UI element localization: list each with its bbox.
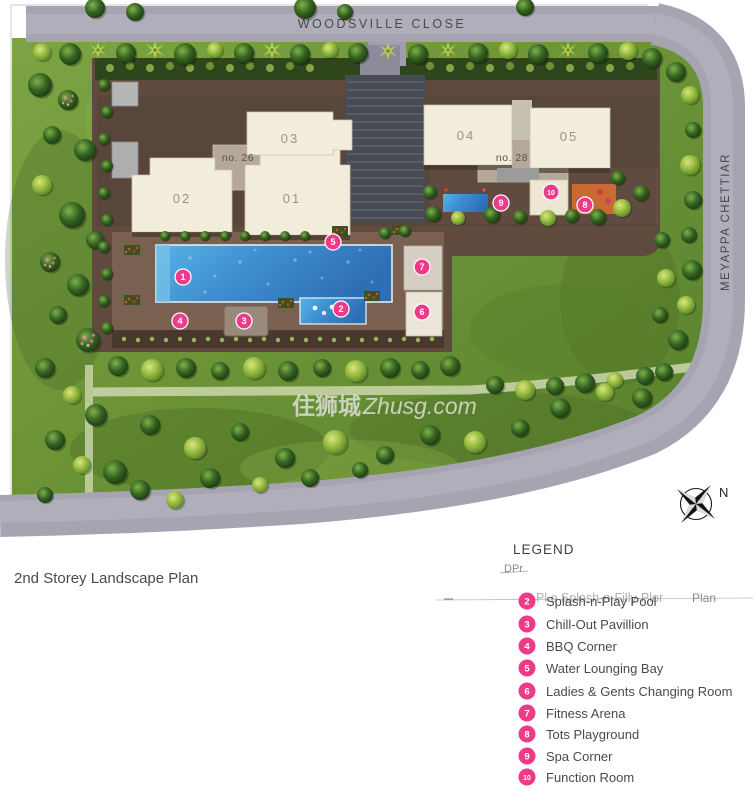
marker-6: 6 <box>414 304 430 320</box>
building-label-05: 05 <box>560 129 578 144</box>
svg-text:2: 2 <box>338 304 343 314</box>
road-label-woodsville-close: WOODSVILLE CLOSE <box>298 17 467 31</box>
legend-heading: LEGEND <box>513 542 575 557</box>
watermark: 住狮城Zhusg.com <box>292 393 477 419</box>
svg-text:7: 7 <box>524 708 529 719</box>
svg-text:Function Room: Function Room <box>546 770 634 785</box>
svg-text:Splash-n-Play Pool: Splash-n-Play Pool <box>546 594 657 609</box>
svg-text:BBQ Corner: BBQ Corner <box>546 639 617 654</box>
svg-text:Chill-Out Pavillion: Chill-Out Pavillion <box>546 617 649 632</box>
building-label-04: 04 <box>457 128 475 143</box>
marker-1: 1 <box>175 269 191 285</box>
lap-pool <box>156 245 392 302</box>
building-label-01: 01 <box>283 191 301 206</box>
building-label-02: 02 <box>173 191 191 206</box>
page-title: 2nd Storey Landscape Plan <box>14 570 198 587</box>
legend-scan-artifact-small: DPr <box>504 563 523 575</box>
svg-text:6: 6 <box>524 686 529 697</box>
svg-text:8: 8 <box>582 200 587 210</box>
svg-text:4: 4 <box>524 641 530 652</box>
marker-7: 7 <box>414 259 430 275</box>
svg-text:5: 5 <box>330 237 335 247</box>
svg-text:Tots Playground: Tots Playground <box>546 727 639 742</box>
svg-text:9: 9 <box>498 198 503 208</box>
site-plan-svg: WOODSVILLE CLOSE MEYAPPA CHETTIAR <box>0 0 753 800</box>
legend-scan-artifact-plan: Plan <box>692 591 716 605</box>
svg-text:6: 6 <box>419 307 424 317</box>
legend-item-changing-room: 6Ladies & Gents Changing Room <box>519 683 733 700</box>
svg-text:2: 2 <box>524 596 529 607</box>
svg-text:8: 8 <box>524 729 529 740</box>
compass-north-label: N <box>719 485 728 500</box>
marker-2: 2 <box>333 301 349 317</box>
marker-8: 8 <box>577 197 593 213</box>
marker-5: 5 <box>325 234 341 250</box>
svg-text:1: 1 <box>180 272 185 282</box>
svg-text:Fitness Arena: Fitness Arena <box>546 706 626 721</box>
svg-text:9: 9 <box>524 751 529 762</box>
building-label-03: 03 <box>281 131 299 146</box>
svg-text:7: 7 <box>419 262 424 272</box>
marker-4: 4 <box>172 313 188 329</box>
svg-text:4: 4 <box>177 316 182 326</box>
svg-text:10: 10 <box>523 775 531 782</box>
marker-10: 10 <box>543 184 559 200</box>
legend-item-spa-corner: 9Spa Corner <box>519 748 614 765</box>
marker-9: 9 <box>493 195 509 211</box>
svg-text:3: 3 <box>241 316 246 326</box>
svg-text:10: 10 <box>547 190 555 197</box>
svg-text:5: 5 <box>524 663 530 674</box>
marker-3: 3 <box>236 313 252 329</box>
svg-text:Water Lounging Bay: Water Lounging Bay <box>546 661 664 676</box>
svg-text:3: 3 <box>524 619 529 630</box>
spa-pool <box>443 194 488 212</box>
road-label-meyappa-chettiar: MEYAPPA CHETTIAR <box>720 153 732 291</box>
buildings-right-cluster <box>424 100 610 182</box>
building-label-no28: no. 28 <box>496 152 528 164</box>
svg-text:Ladies & Gents Changing Room: Ladies & Gents Changing Room <box>546 684 732 699</box>
svg-text:Spa Corner: Spa Corner <box>546 749 613 764</box>
building-label-no26: no. 26 <box>222 152 254 164</box>
landscape-plan-page: WOODSVILLE CLOSE MEYAPPA CHETTIAR <box>0 0 753 800</box>
